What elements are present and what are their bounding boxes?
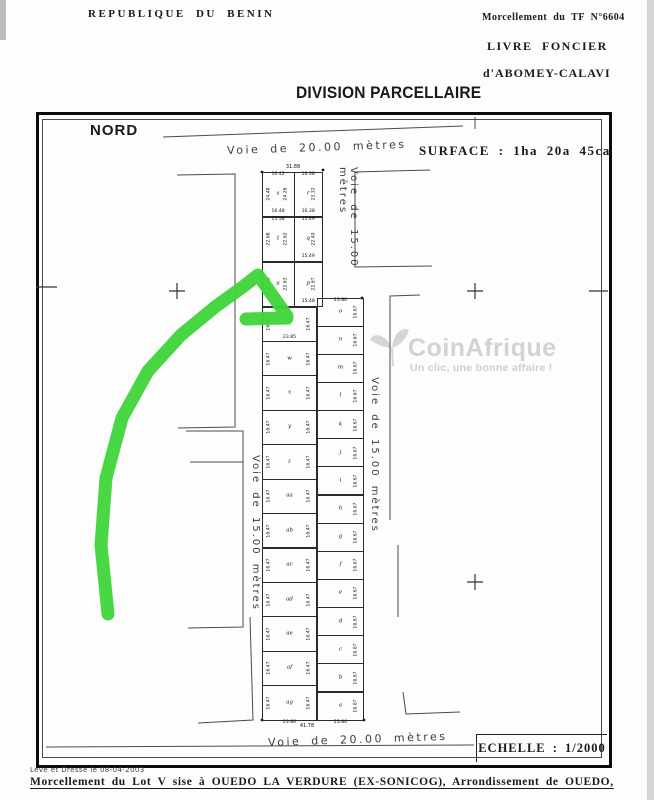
parcel-letter: a [339, 703, 342, 709]
document-title: DIVISION PARCELLAIRE [296, 84, 481, 103]
parcel-cell: h16.67 [317, 495, 365, 524]
parcel-cell: z16.4716.47 [262, 444, 318, 479]
parcel-letter: d [339, 619, 343, 625]
parcel-letter: o [339, 309, 342, 315]
parcel-cell: y16.4716.47 [262, 410, 318, 445]
parcel-row: u22.6822.63p15.4822.67 [262, 262, 324, 307]
parcel-letter: ad [286, 597, 293, 603]
parcel-cell: o23.8616.67 [317, 298, 365, 327]
parcel-cell: aa16.4716.47 [262, 479, 318, 514]
republic-title: REPUBLIQUE DU BENIN [88, 8, 274, 20]
parcel-cell: ab16.4716.47 [262, 513, 318, 548]
strip-total-width-bottom: 41.78 [252, 723, 362, 729]
parcel-letter: k [339, 422, 342, 428]
watermark-brand: CoinAfrique [408, 334, 557, 363]
parcel-letter: af [287, 666, 292, 672]
parcel-cell: u22.6822.63 [262, 262, 295, 307]
parcel-cell: l16.67 [317, 382, 365, 411]
parcel-cell: k16.67 [317, 410, 365, 439]
parcel-letter: aa [286, 494, 293, 500]
road-label-right-upper: Voie de 15.00 mètres [337, 167, 359, 317]
parcel-cell: ac16.4716.47 [262, 548, 318, 583]
parcel-letter: t [277, 236, 279, 242]
parcel-letter: b [339, 675, 343, 681]
parcel-grid-wide-right: o23.8616.67n16.67m16.67l16.67k16.67j16.6… [317, 298, 364, 720]
parcel-cell: d16.67 [317, 607, 365, 636]
parcel-cell: q15.4915.4922.40 [294, 217, 323, 262]
parcel-cell: x16.4716.47 [262, 375, 318, 410]
photo-edge-right [647, 0, 654, 800]
parcel-cell: g16.67 [317, 523, 365, 552]
parcel-letter: u [276, 281, 280, 287]
parcel-cell: v23.8516.4716.47 [262, 307, 318, 342]
parcel-letter: i [340, 478, 342, 484]
road-label-right-lower: Voie de 15.00 mètres [369, 377, 380, 552]
parcel-letter: z [288, 459, 291, 465]
scale-box: ECHELLE : 1/2000 [476, 734, 607, 762]
parcel-grid-wide-left: v23.8516.4716.47w16.4716.47x16.4716.47y1… [262, 307, 317, 720]
parcel-letter: g [339, 534, 343, 540]
morcellement-ref: Morcellement du TF N°6604 [482, 12, 625, 23]
parcel-cell: ae16.4716.47 [262, 616, 318, 651]
photo-edge-topleft [0, 0, 6, 40]
parcel-letter: ae [286, 631, 293, 637]
parcel-cell: af16.4716.47 [262, 651, 318, 686]
footer-caption: Morcellement du Lot V sise à OUEDO LA VE… [30, 776, 614, 788]
parcel-row: s16.4216.4824.4824.26r16.3816.3823.32 [262, 172, 324, 217]
parcel-cell: n16.67 [317, 326, 365, 355]
road-label-left: Voie de 15.00 mètres [250, 455, 261, 635]
parcel-cell: r16.3816.3823.32 [294, 172, 323, 217]
parcel-cell: m16.67 [317, 354, 365, 383]
parcel-letter: n [339, 337, 343, 343]
page: { "header": { "republic": "REPUBLIQUE DU… [0, 0, 654, 800]
strip-total-width-top: 31.88 [262, 164, 324, 170]
parcel-letter: m [338, 366, 343, 372]
livre-location-label: d'ABOMEY-CALAVI [483, 66, 611, 81]
survey-note: Levé et Dressé le 08-04-2003 [30, 766, 145, 774]
parcel-letter: y [288, 425, 291, 431]
north-label: NORD [90, 122, 138, 139]
parcel-letter: s [277, 191, 280, 197]
parcel-cell: f16.67 [317, 551, 365, 580]
parcel-letter: p [306, 281, 310, 287]
parcel-letter: v [288, 321, 291, 327]
parcel-letter: h [339, 506, 343, 512]
parcel-cell: i16.67 [317, 466, 365, 495]
livre-foncier-label: LIVRE FONCIER [487, 39, 608, 54]
parcel-letter: ag [286, 700, 293, 706]
parcel-grid-narrow: s16.4216.4824.4824.26r16.3816.3823.32t15… [262, 172, 324, 307]
parcel-letter: w [287, 356, 292, 362]
scale-label: ECHELLE : 1/2000 [478, 741, 606, 756]
parcel-letter: x [288, 390, 291, 396]
watermark-tagline: Un clic, une bonne affaire ! [410, 362, 553, 374]
parcel-cell: b16.67 [317, 663, 365, 692]
parcel-letter: ac [286, 562, 292, 568]
parcel-letter: j [340, 450, 342, 456]
parcel-letter: e [339, 591, 342, 597]
parcel-cell: e16.67 [317, 579, 365, 608]
parcel-letter: ab [286, 528, 293, 534]
parcel-letter: f [339, 563, 341, 569]
parcel-row: t15.5822.6822.62q15.4915.4922.40 [262, 217, 324, 262]
parcel-letter: l [340, 394, 342, 400]
parcel-letter: c [339, 647, 342, 653]
parcel-cell: s16.4216.4824.4824.26 [262, 172, 295, 217]
parcel-cell: c16.67 [317, 635, 365, 664]
parcel-cell: t15.5822.6822.62 [262, 217, 295, 262]
parcel-cell: j16.67 [317, 438, 365, 467]
parcel-letter: q [306, 236, 310, 242]
parcel-cell: a23.8616.67 [317, 692, 365, 721]
surface-label: SURFACE : 1ha 20a 45ca [419, 143, 611, 159]
parcel-cell: ad16.4716.47 [262, 582, 318, 617]
parcel-cell: ag23.8616.4716.47 [262, 685, 318, 720]
parcel-letter: r [307, 191, 310, 197]
parcel-cell: w16.4716.47 [262, 341, 318, 376]
